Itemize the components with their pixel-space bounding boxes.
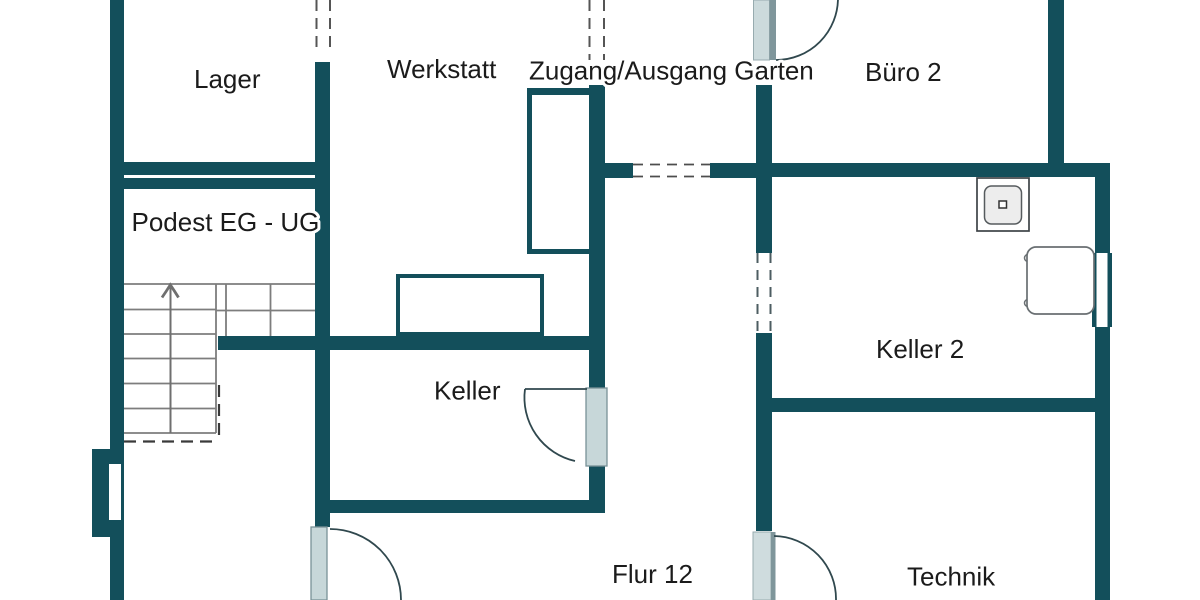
svg-text:Werkstatt: Werkstatt bbox=[387, 54, 497, 84]
svg-text:Lager: Lager bbox=[194, 64, 261, 94]
svg-text:Zugang/Ausgang Garten: Zugang/Ausgang Garten bbox=[529, 56, 814, 86]
svg-text:Podest EG - UG: Podest EG - UG bbox=[132, 207, 320, 237]
svg-text:Keller 2: Keller 2 bbox=[876, 334, 964, 364]
svg-text:Flur 12: Flur 12 bbox=[612, 559, 693, 589]
svg-text:Keller: Keller bbox=[434, 376, 501, 406]
svg-text:Technik: Technik bbox=[907, 562, 996, 592]
svg-text:Büro 2: Büro 2 bbox=[865, 57, 942, 87]
